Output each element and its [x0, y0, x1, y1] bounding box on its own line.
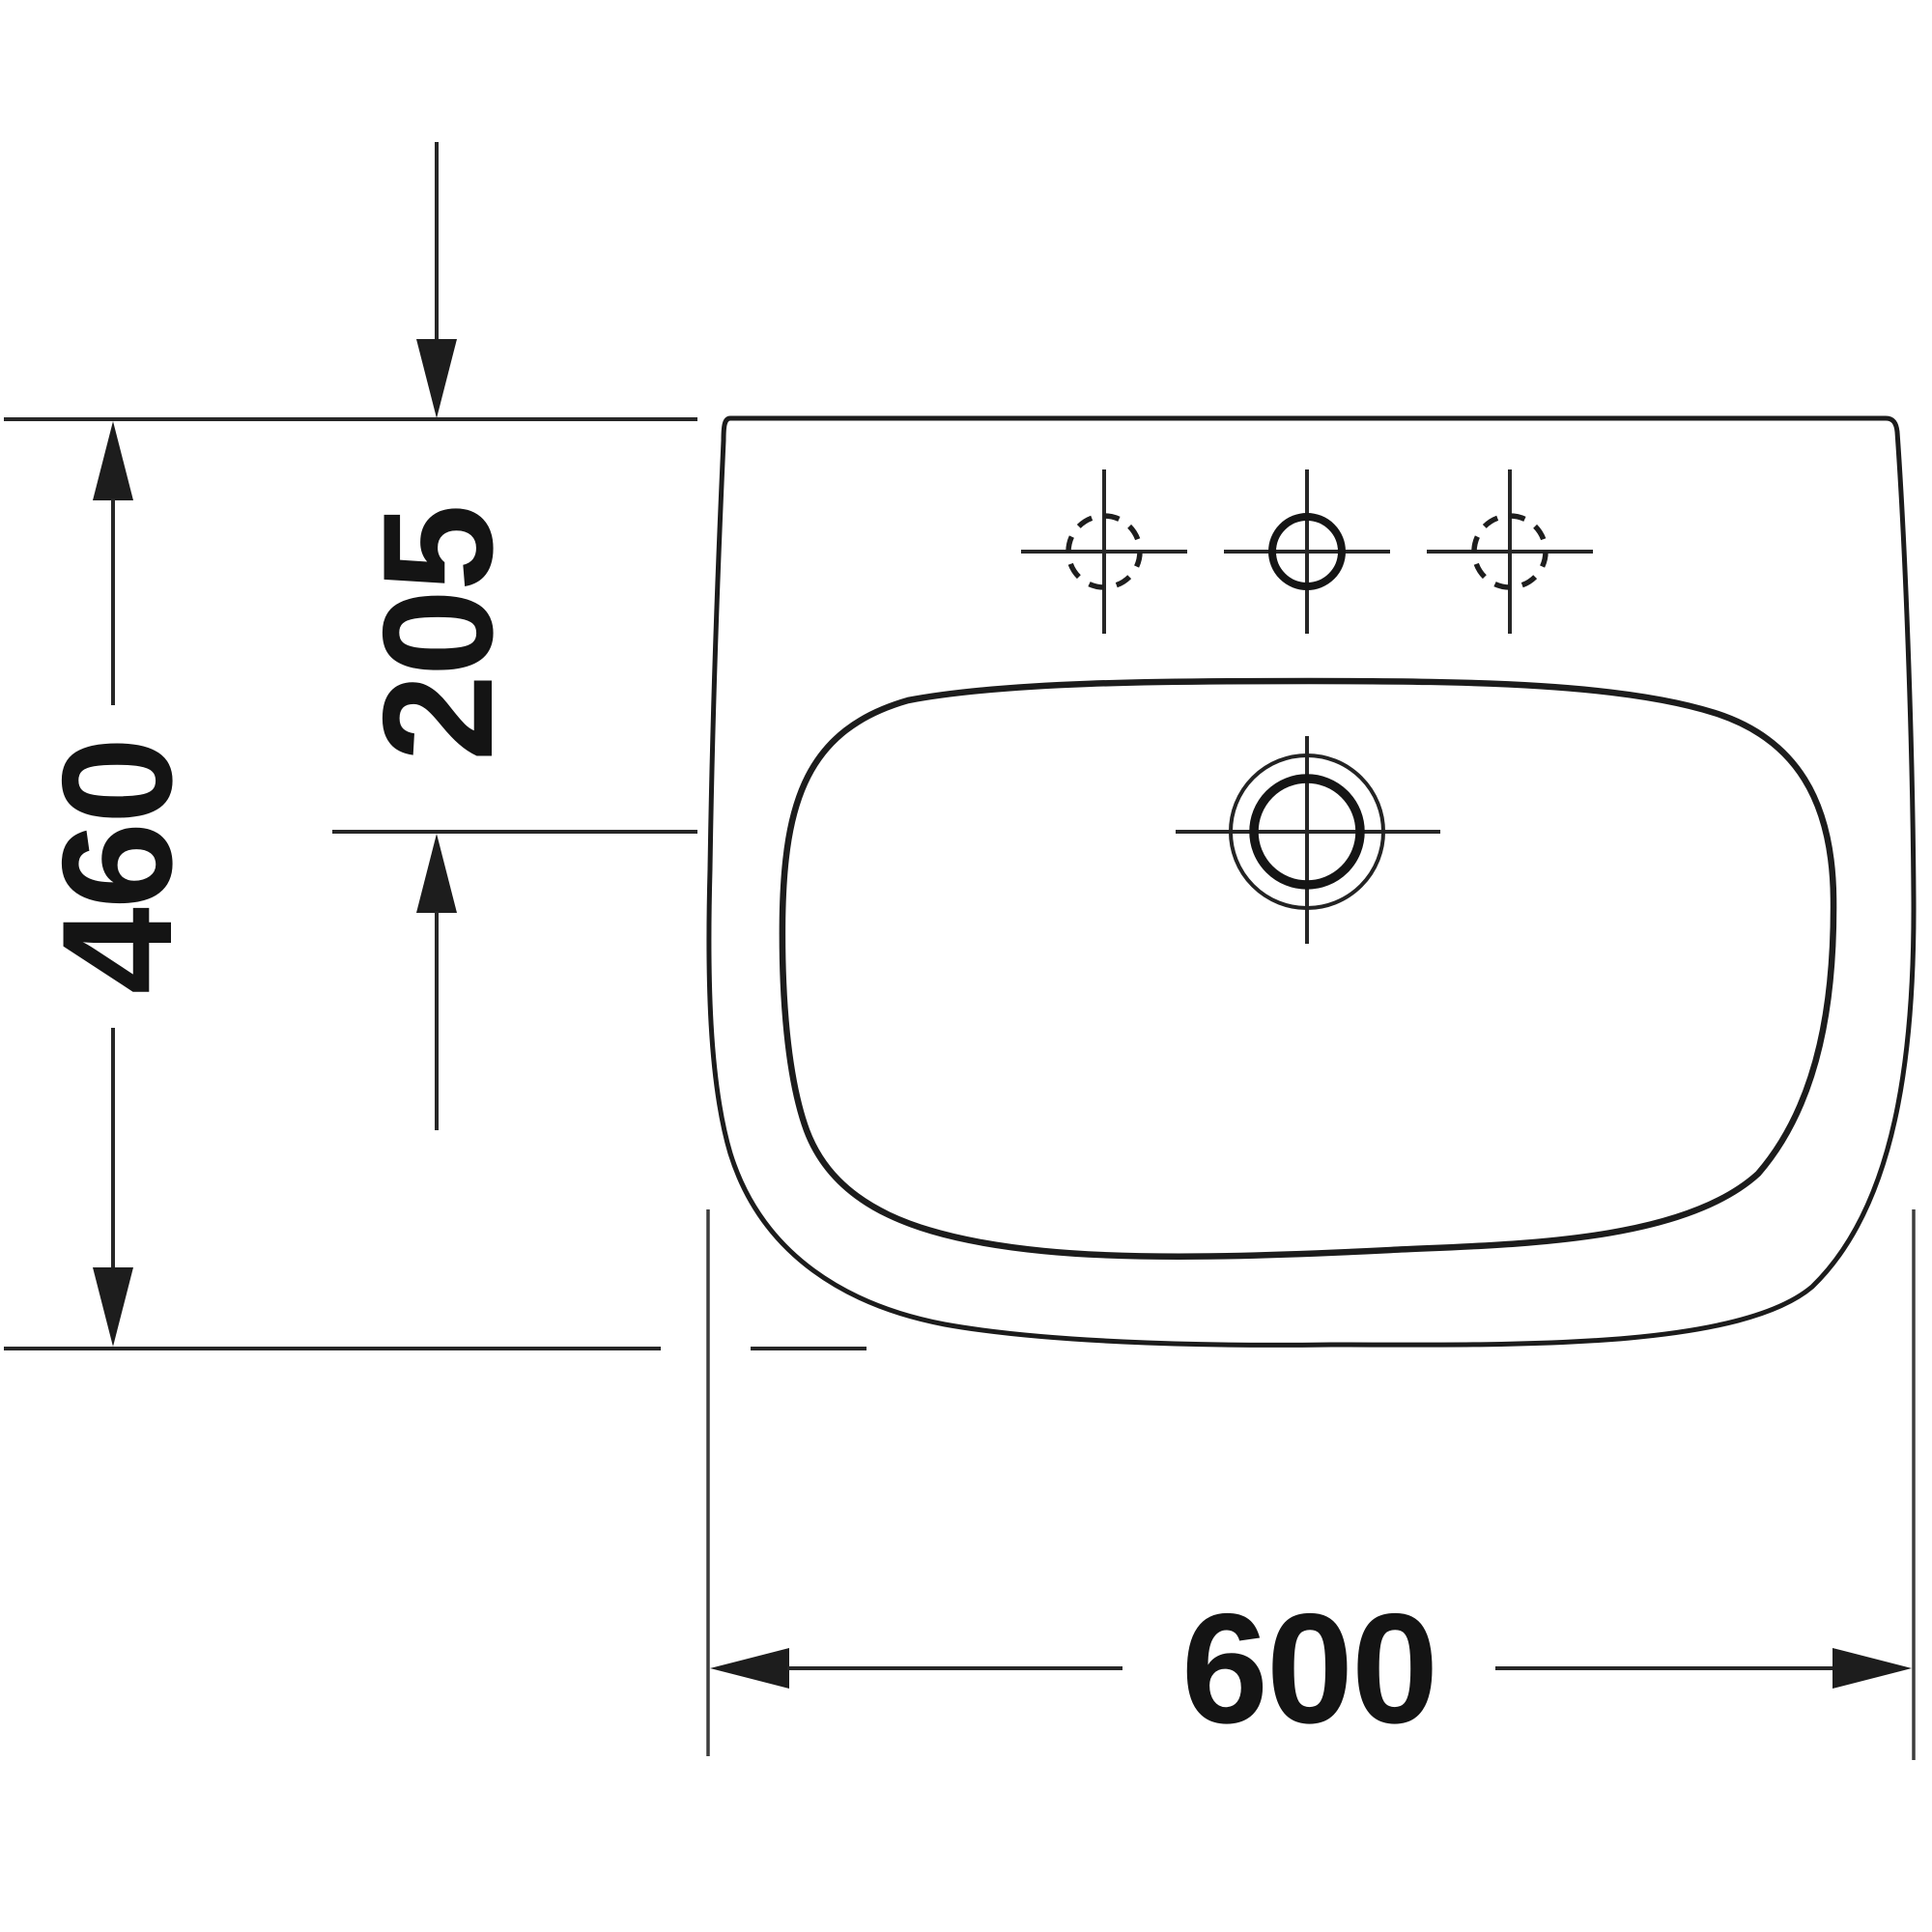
tap-hole-right-icon: [1427, 469, 1593, 634]
washbasin-dimension-drawing: 460 205 600: [0, 0, 1932, 1932]
dimension-width: 600: [708, 1209, 1914, 1760]
depth-dimension-label: 460: [30, 739, 205, 994]
tap-hole-left-icon: [1021, 469, 1187, 634]
arrowhead-down-icon: [93, 1267, 133, 1347]
arrowhead-up-icon: [93, 421, 133, 500]
dimension-drain-offset: 205: [332, 142, 697, 1130]
tap-hole-center-icon: [1224, 469, 1390, 634]
drain-icon: [1176, 736, 1440, 944]
arrowhead-left-icon: [710, 1648, 789, 1689]
technical-drawing-canvas: 460 205 600: [0, 0, 1932, 1932]
arrowhead-right-icon: [1833, 1648, 1912, 1689]
drain-offset-dimension-label: 205: [351, 506, 526, 761]
arrowhead-down-icon: [416, 339, 457, 418]
width-dimension-label: 600: [1181, 1581, 1436, 1756]
washbasin-top-view: [709, 418, 1914, 1345]
arrowhead-up-icon: [416, 834, 457, 913]
